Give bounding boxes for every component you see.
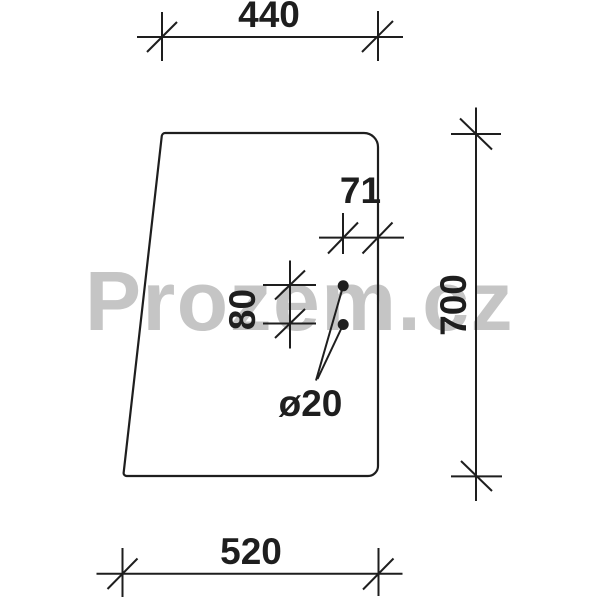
svg-text:440: 440 xyxy=(238,0,300,35)
svg-text:700: 700 xyxy=(433,274,474,336)
svg-text:71: 71 xyxy=(340,170,381,211)
svg-text:ø20: ø20 xyxy=(279,383,343,424)
svg-text:520: 520 xyxy=(220,531,282,572)
svg-text:80: 80 xyxy=(222,289,263,330)
